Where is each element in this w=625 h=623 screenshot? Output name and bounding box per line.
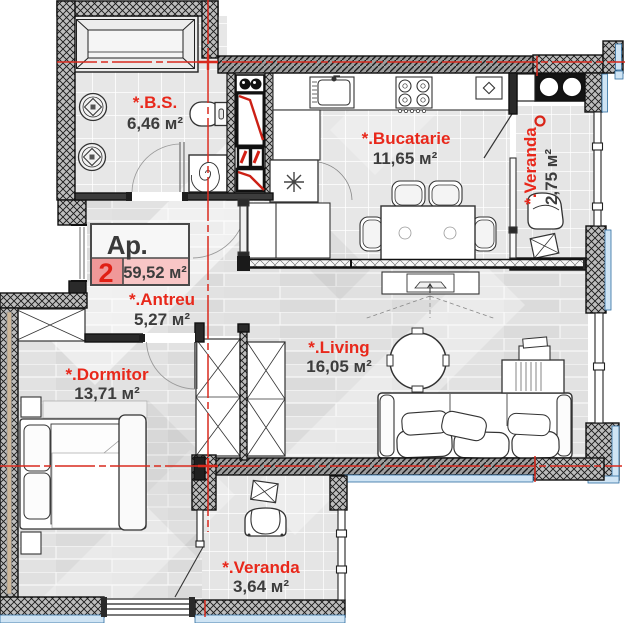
svg-text:16,05 м²: 16,05 м² — [306, 357, 372, 376]
svg-text:*.Dormitor: *.Dormitor — [65, 365, 149, 384]
svg-text:11,65 м²: 11,65 м² — [373, 149, 438, 168]
svg-text:*.Veranda: *.Veranda — [222, 558, 300, 577]
svg-text:*.Veranda: *.Veranda — [521, 127, 540, 205]
svg-text:*.Bucatarie: *.Bucatarie — [362, 129, 451, 148]
svg-text:13,71 м²: 13,71 м² — [74, 384, 140, 403]
svg-text:5,27 м²: 5,27 м² — [134, 310, 190, 329]
svg-text:3,64 м²: 3,64 м² — [233, 577, 289, 596]
svg-text:59,52 м²: 59,52 м² — [123, 264, 187, 282]
svg-text:*.B.S.: *.B.S. — [133, 93, 177, 112]
svg-text:6,46 м²: 6,46 м² — [127, 114, 183, 133]
svg-text:*.Antreu: *.Antreu — [129, 290, 195, 309]
svg-text:*.Living: *.Living — [308, 338, 369, 357]
svg-text:2,75 м²: 2,75 м² — [542, 149, 561, 205]
svg-text:2: 2 — [98, 258, 113, 288]
svg-text:Ap.: Ap. — [107, 230, 147, 260]
